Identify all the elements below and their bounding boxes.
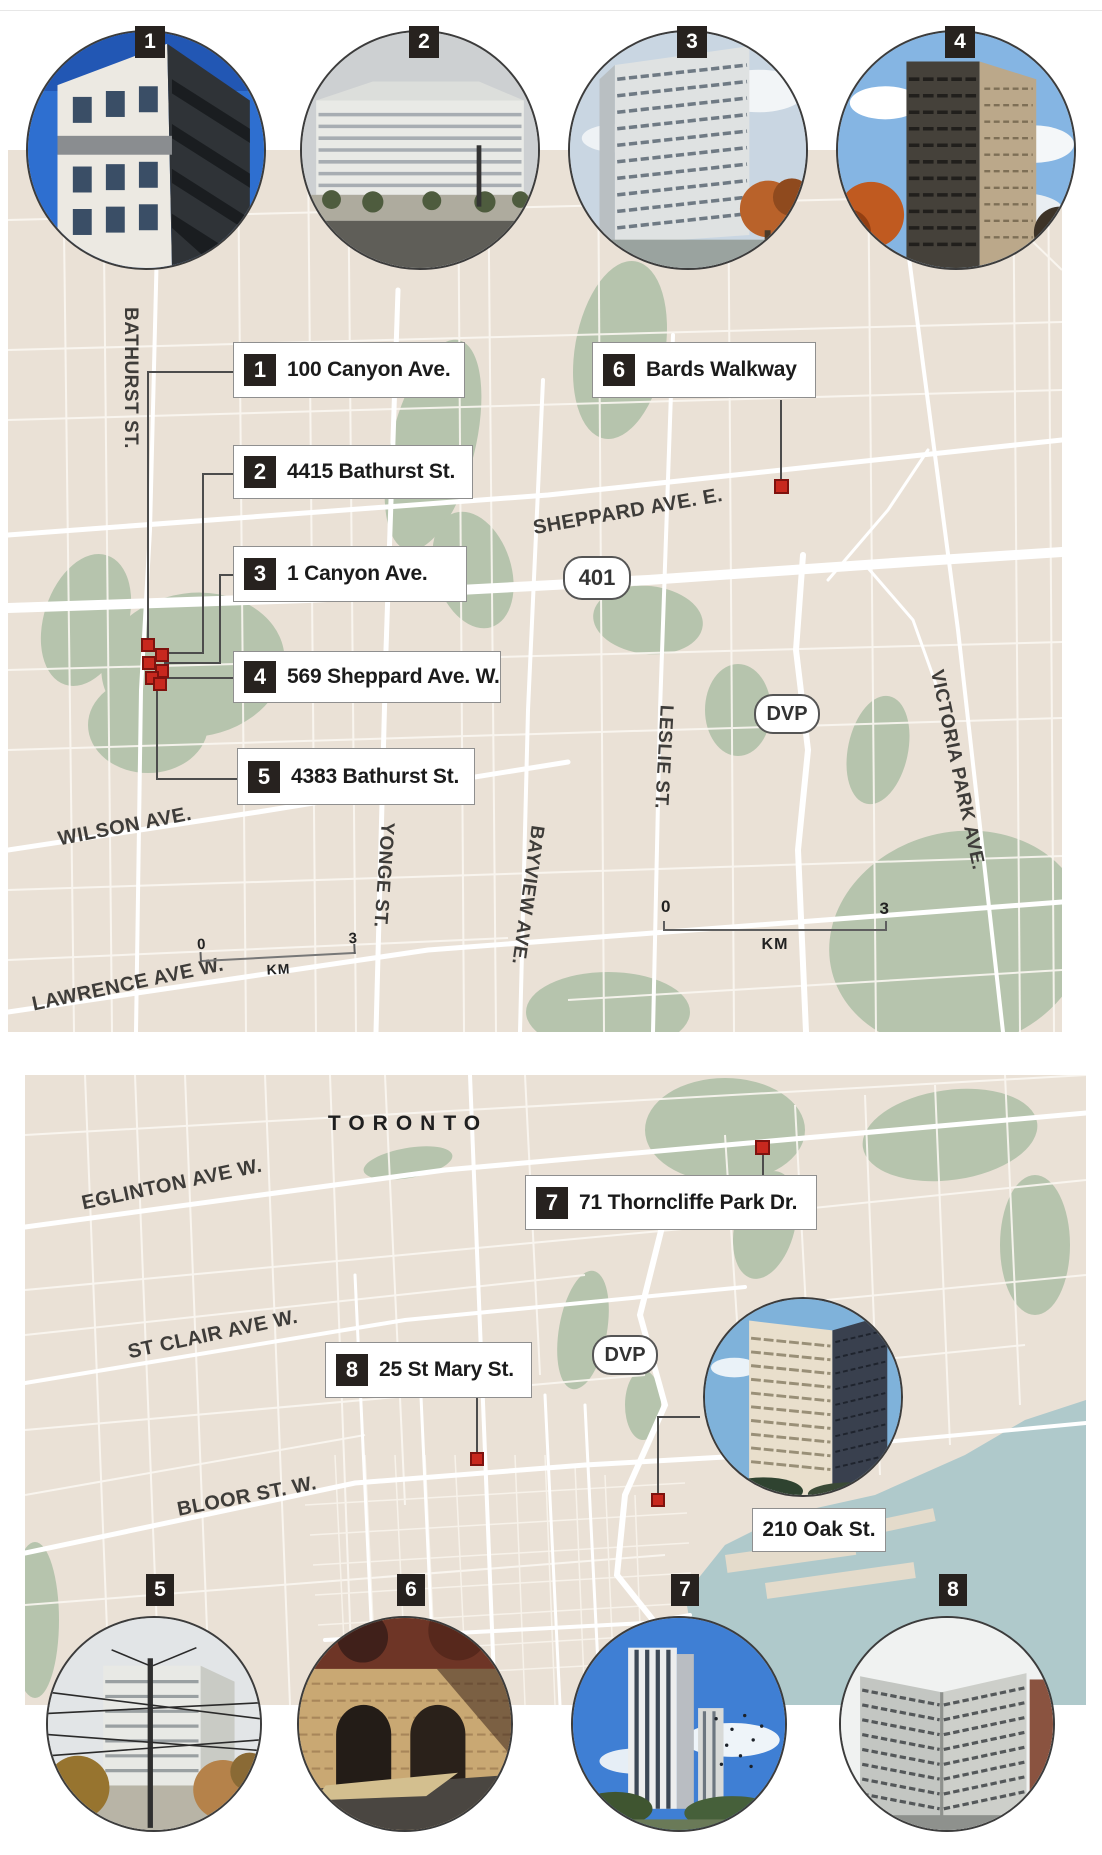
scale-line — [663, 929, 887, 931]
photo-2-illustration — [302, 32, 538, 268]
callout-3: 3 1 Canyon Ave. — [233, 546, 467, 602]
photo-8-illustration — [841, 1618, 1053, 1830]
scale-small-start: 0 — [197, 936, 206, 953]
oak-street-label: 210 Oak St. — [752, 1508, 886, 1552]
callout-5: 5 4383 Bathurst St. — [237, 748, 475, 805]
photo-4-number: 4 — [954, 30, 966, 54]
photo-6-illustration — [299, 1618, 511, 1830]
callout-8-badge: 8 — [336, 1354, 368, 1386]
callout-8-label: 25 St Mary St. — [379, 1358, 514, 1382]
photo-5-illustration — [48, 1618, 260, 1830]
callout-2-label: 4415 Bathurst St. — [287, 460, 455, 484]
callout-7: 7 71 Thorncliffe Park Dr. — [525, 1175, 817, 1230]
photo-25-st-mary — [839, 1616, 1055, 1832]
scale-small-unit: KM — [266, 960, 291, 977]
map-north-york: BATHURST ST. SHEPPARD AVE. E. WILSON AVE… — [8, 150, 1062, 1032]
photo-4-illustration — [838, 32, 1074, 268]
photo-4-number-badge: 4 — [945, 26, 975, 58]
photo-6-number-badge: 6 — [397, 1574, 425, 1606]
photo-4383-bathurst — [46, 1616, 262, 1832]
infographic-canvas: BATHURST ST. SHEPPARD AVE. E. WILSON AVE… — [0, 0, 1102, 1855]
photo-5-number: 5 — [154, 1578, 166, 1602]
callout-5-label: 4383 Bathurst St. — [291, 765, 459, 789]
dvp-shield-map2: DVP — [592, 1335, 658, 1375]
photo-7-number-badge: 7 — [671, 1574, 699, 1606]
highway-401-label: 401 — [579, 565, 616, 591]
scale-bar-small: 0 3 KM — [189, 925, 368, 994]
callout-1: 1 100 Canyon Ave. — [233, 342, 465, 398]
callout-6: 6 Bards Walkway — [592, 342, 816, 398]
callout-3-label: 1 Canyon Ave. — [287, 562, 428, 586]
photo-3-number: 3 — [686, 30, 698, 54]
photo-3-illustration — [570, 32, 806, 268]
photo-1-number-badge: 1 — [135, 26, 165, 58]
photo-3-number-badge: 3 — [677, 26, 707, 58]
photo-8-number-badge: 8 — [939, 1574, 967, 1606]
photo-210-oak — [703, 1297, 903, 1497]
photo-6-number: 6 — [405, 1578, 417, 1602]
callout-2: 2 4415 Bathurst St. — [233, 445, 473, 499]
scale-end: 3 — [880, 899, 889, 919]
photo-2-number: 2 — [418, 30, 430, 54]
callout-1-badge: 1 — [244, 354, 276, 386]
dvp-label-map2: DVP — [604, 1344, 645, 1367]
photo-7-illustration — [573, 1618, 785, 1830]
city-label-toronto: TORONTO — [328, 1112, 488, 1136]
photo-71-thorncliffe — [571, 1616, 787, 1832]
callout-5-badge: 5 — [248, 761, 280, 793]
photo-8-number: 8 — [947, 1578, 959, 1602]
photo-4415-bathurst — [300, 30, 540, 270]
dvp-shield-map1: DVP — [754, 694, 820, 734]
scale-start: 0 — [661, 897, 670, 917]
photo-2-number-badge: 2 — [409, 26, 439, 58]
scale-bar-main: 0 3 KM — [653, 895, 897, 955]
callout-4: 4 569 Sheppard Ave. W. — [233, 651, 501, 703]
photo-100-canyon — [26, 30, 266, 270]
oak-street-label-text: 210 Oak St. — [762, 1518, 875, 1542]
callout-6-label: Bards Walkway — [646, 358, 797, 382]
photo-1-illustration — [28, 32, 264, 268]
callout-7-badge: 7 — [536, 1187, 568, 1219]
photo-1-number: 1 — [144, 30, 156, 54]
callout-4-badge: 4 — [244, 661, 276, 693]
scale-unit: KM — [762, 936, 789, 954]
photo-bards-walkway — [297, 1616, 513, 1832]
photo-1-canyon — [568, 30, 808, 270]
dvp-label-map1: DVP — [766, 703, 807, 726]
callout-2-badge: 2 — [244, 456, 276, 488]
photo-569-sheppard — [836, 30, 1076, 270]
highway-401-shield: 401 — [563, 556, 631, 600]
callout-6-badge: 6 — [603, 354, 635, 386]
photo-7-number: 7 — [679, 1578, 691, 1602]
callout-3-badge: 3 — [244, 558, 276, 590]
photo-5-number-badge: 5 — [146, 1574, 174, 1606]
top-divider — [0, 10, 1102, 11]
callout-4-label: 569 Sheppard Ave. W. — [287, 665, 500, 689]
street-bathurst: BATHURST ST. — [119, 307, 141, 449]
callout-1-label: 100 Canyon Ave. — [287, 358, 451, 382]
callout-7-label: 71 Thorncliffe Park Dr. — [579, 1191, 797, 1215]
photo-oak-illustration — [705, 1299, 901, 1495]
map-toronto: TORONTO EGLINTON AVE W. ST CLAIR AVE W. … — [25, 1075, 1086, 1705]
callout-8: 8 25 St Mary St. — [325, 1342, 532, 1398]
